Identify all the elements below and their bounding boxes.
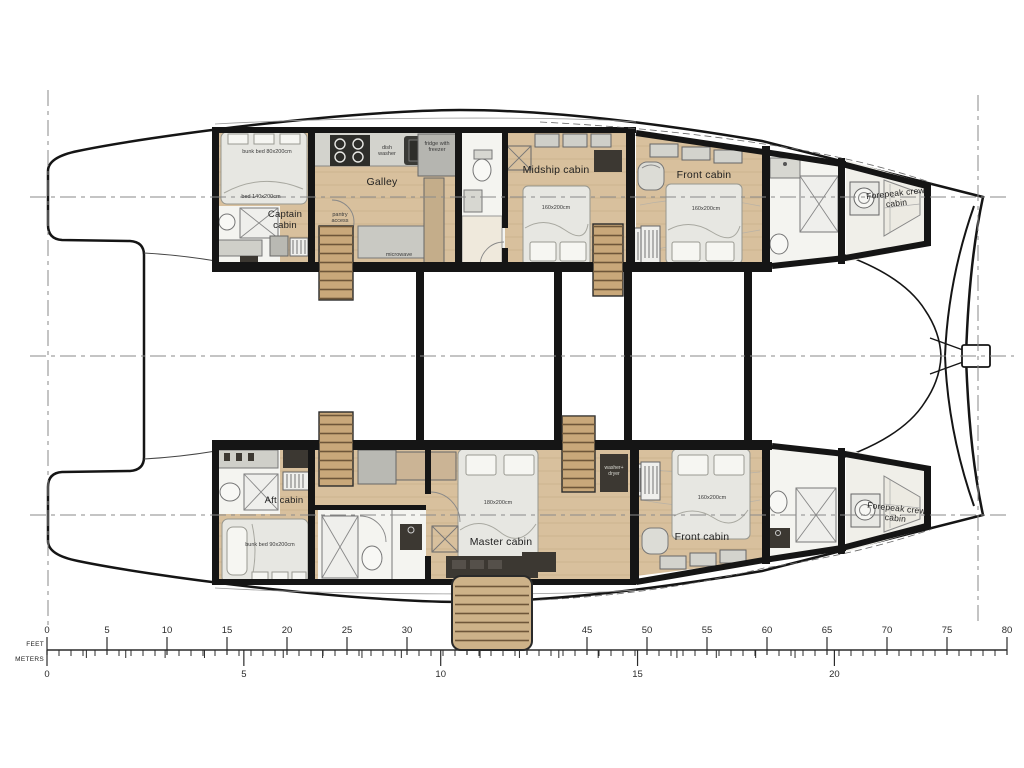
front-cabin-top-label: Front cabin	[662, 169, 746, 181]
svg-text:0: 0	[44, 625, 49, 636]
fridge-label: fridge with freezer	[420, 141, 454, 154]
sink	[219, 214, 235, 230]
svg-text:60: 60	[762, 625, 773, 636]
microwave-label: microwave	[374, 252, 424, 258]
master-cabin-label: Master cabin	[446, 536, 556, 548]
svg-text:5: 5	[241, 669, 246, 680]
svg-text:75: 75	[942, 625, 953, 636]
svg-text:55: 55	[702, 625, 713, 636]
svg-text:0: 0	[44, 669, 49, 680]
svg-text:20: 20	[282, 625, 293, 636]
gangway-plank	[452, 576, 532, 650]
sink	[464, 190, 482, 212]
wardrobe	[283, 448, 309, 468]
svg-text:70: 70	[882, 625, 893, 636]
toilet	[362, 546, 382, 570]
svg-text:5: 5	[104, 625, 109, 636]
svg-text:10: 10	[162, 625, 173, 636]
svg-text:15: 15	[632, 669, 643, 680]
front-bottom-bed-dim-label: 160x200cm	[688, 495, 736, 501]
chair	[638, 162, 664, 190]
feet-unit-label: FEET	[12, 641, 44, 648]
washer-dryer-label: washer+ dryer	[601, 466, 627, 478]
svg-text:10: 10	[435, 669, 446, 680]
midship-bed-dim-label: 160x200cm	[532, 205, 580, 211]
stove-icon	[330, 135, 370, 166]
stairs-bottom-aft	[319, 412, 353, 486]
front-cabin-bottom-label: Front cabin	[660, 531, 744, 543]
aft-cabin-label: Aft cabin	[260, 495, 308, 506]
svg-text:20: 20	[829, 669, 840, 680]
bunk-bed-90-label: bunk bed 90x200cm	[244, 542, 296, 548]
svg-text:65: 65	[822, 625, 833, 636]
stairs-bottom-mid	[562, 416, 595, 492]
stairs-top-aft	[319, 226, 353, 300]
sink	[770, 158, 800, 178]
pantry-access-label: pantry access	[325, 212, 355, 225]
sink	[400, 524, 422, 550]
svg-text:25: 25	[342, 625, 353, 636]
cabinet	[358, 450, 396, 484]
bed-140-label: bed 140x200cm	[228, 194, 294, 200]
meters-unit-label: METERS	[6, 656, 44, 663]
toilet	[473, 159, 491, 181]
dishwasher-label: dish washer	[374, 145, 400, 158]
pantry-cabinet	[424, 178, 444, 266]
galley-label: Galley	[352, 176, 412, 188]
sink	[220, 483, 240, 501]
svg-text:30: 30	[402, 625, 413, 636]
midship-cabin-label: Midship cabin	[508, 164, 604, 176]
bunk-bed-80-label: bunk bed 80x200cm	[237, 149, 297, 155]
toilet	[770, 234, 788, 254]
svg-text:50: 50	[642, 625, 653, 636]
stairs-top-mid	[593, 224, 623, 296]
toilet	[769, 491, 787, 513]
svg-text:15: 15	[222, 625, 233, 636]
svg-text:80: 80	[1002, 625, 1013, 636]
cabinet	[522, 552, 556, 572]
master-bed-dim-label: 180x200cm	[474, 500, 522, 506]
captain-cabin-label: Captain cabin	[259, 209, 311, 231]
deck-plan-page: 0510152025303540455055606570758005101520	[0, 0, 1024, 768]
front-top-bed-dim-label: 160x200cm	[682, 206, 730, 212]
svg-text:45: 45	[582, 625, 593, 636]
deck-plan-drawing: 0510152025303540455055606570758005101520	[0, 0, 1024, 768]
